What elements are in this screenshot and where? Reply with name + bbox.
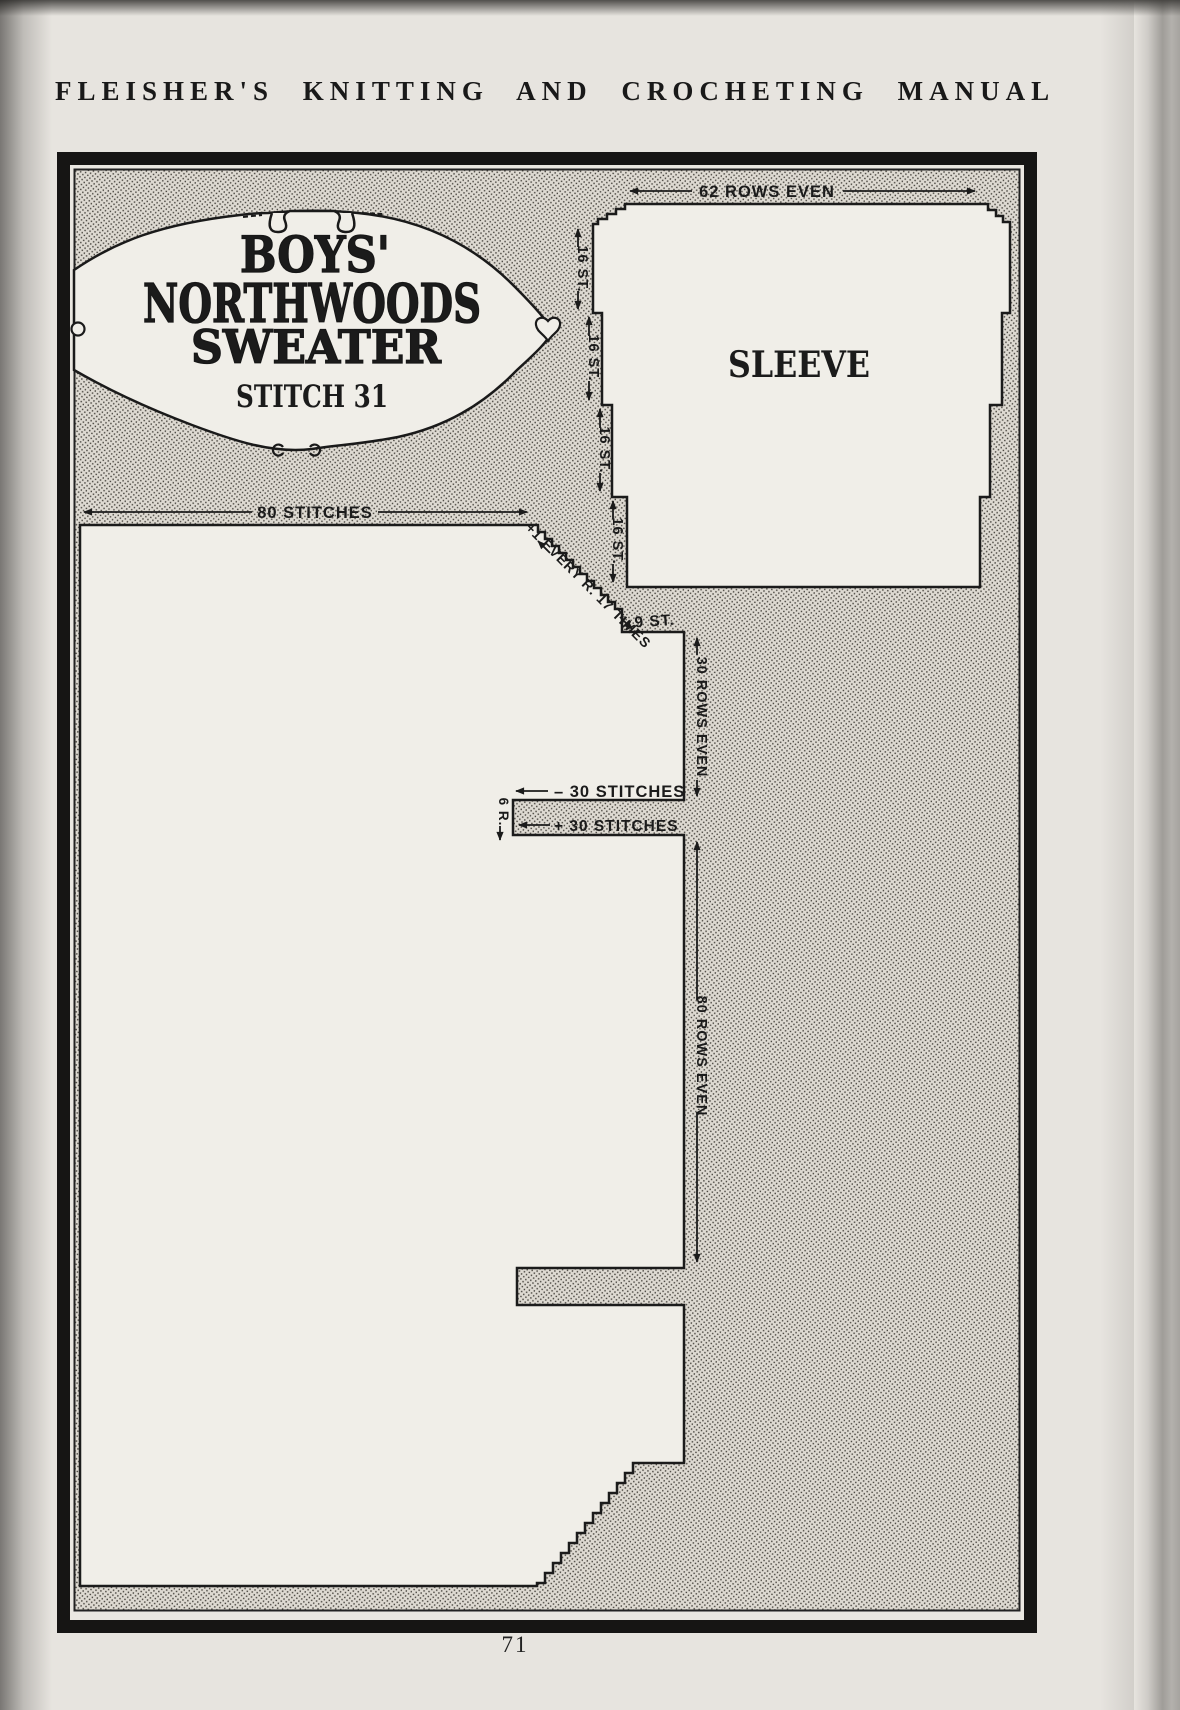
neck-stitches-label: 9 ST. xyxy=(634,612,675,632)
sleeve-step-label-3: 16 ST. xyxy=(596,426,612,473)
sleeve-step-label-1: 16 ST. xyxy=(574,245,590,292)
page-top-shadow xyxy=(0,0,1180,16)
sleeve-step-label-2: 16 ST. xyxy=(585,334,601,381)
body-piece xyxy=(80,525,684,1586)
upper-rows-label: 30 ROWS EVEN xyxy=(693,657,709,778)
banner-title-line3: SWEATER xyxy=(191,320,442,374)
sleeve-piece xyxy=(593,204,1010,587)
banner-subtitle: STITCH 31 xyxy=(236,379,388,415)
running-header: FLEISHER'S KNITTING AND CROCHETING MANUA… xyxy=(55,76,955,107)
book-gutter-shadow xyxy=(0,0,52,1710)
page-edge-curl xyxy=(1134,0,1180,1710)
cast-on-label: + 30 STITCHES xyxy=(554,818,679,835)
pattern-plate: BOYS' NORTHWOODS SWEATER STITCH 31 SLEEV… xyxy=(57,152,1037,1633)
banner-grommet-icon xyxy=(72,323,85,336)
sleeve-step-label-4: 16 ST. xyxy=(609,517,625,564)
scanned-manual-page: FLEISHER'S KNITTING AND CROCHETING MANUA… xyxy=(0,0,1180,1710)
sleeve-label: SLEEVE xyxy=(728,344,870,386)
page-number: 71 xyxy=(455,1632,575,1658)
page-edge-band xyxy=(1100,0,1134,1710)
sleeve-top-rows-label: 62 ROWS EVEN xyxy=(699,183,835,201)
bind-off-label: – 30 STITCHES xyxy=(554,783,685,801)
body-top-label: 80 STITCHES xyxy=(257,504,373,522)
slit-rows-label: 6 R. xyxy=(496,798,511,827)
lower-rows-label: 80 ROWS EVEN xyxy=(693,996,709,1117)
